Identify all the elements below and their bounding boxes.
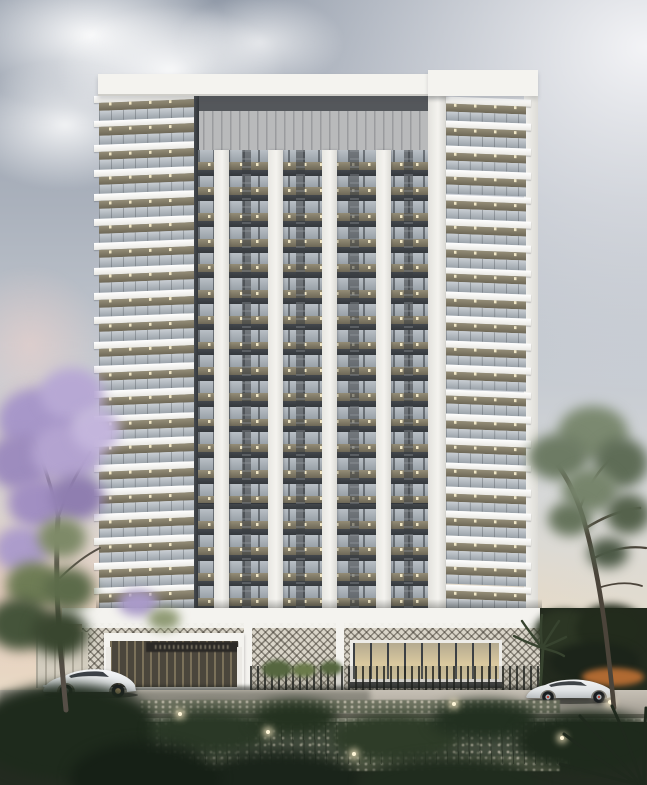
jacaranda-foliage	[44, 568, 94, 610]
jacaranda-blossoms	[72, 408, 120, 452]
jacaranda-foliage	[32, 610, 88, 656]
foreground-bush	[250, 700, 340, 736]
shrub	[292, 663, 316, 677]
foliage-sprig	[148, 608, 180, 630]
architectural-render	[0, 0, 647, 785]
shrub	[320, 661, 342, 675]
jacaranda-blossoms	[50, 474, 104, 520]
tree-foliage	[606, 494, 647, 534]
palm-fronds-foreground	[558, 698, 647, 785]
canopy-column	[237, 647, 242, 691]
jacaranda-foliage	[38, 518, 86, 558]
jacaranda-tree	[0, 348, 138, 716]
tree-foliage	[588, 538, 628, 568]
green-canopy-tree	[528, 398, 647, 710]
tree-foliage	[548, 502, 592, 536]
shrub	[262, 660, 292, 678]
entrance-sign-illegible	[146, 642, 238, 652]
